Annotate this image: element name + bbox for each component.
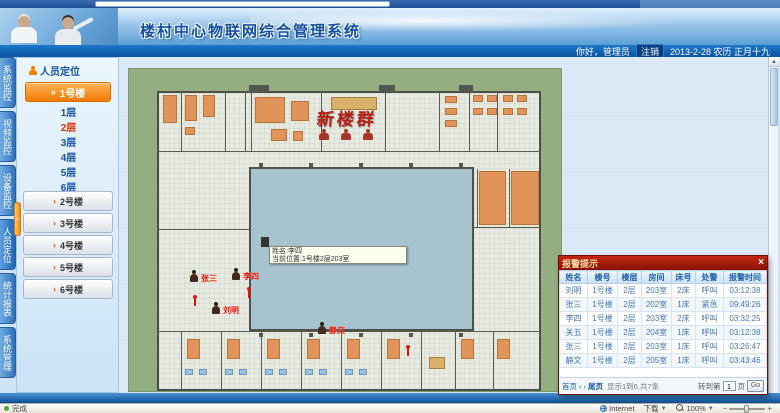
furniture-block [487, 95, 497, 102]
sofa-icon [363, 129, 373, 141]
welcome-text: 你好，管理员 [576, 45, 630, 58]
alarm-row[interactable]: 关五1号楼2层204室1床呼叫03:12:38 [560, 326, 767, 340]
magnifier-icon [676, 404, 685, 413]
col-bed: 床号 [672, 271, 696, 284]
furniture-block [307, 339, 320, 359]
panel-collapse-handle[interactable]: ‹ [14, 202, 21, 236]
wall-line [221, 331, 222, 391]
wall-line [439, 91, 440, 151]
furniture-block [487, 108, 497, 115]
furniture-block [347, 339, 360, 359]
furniture-block [511, 171, 539, 225]
person-figure-icon[interactable] [246, 287, 252, 299]
furniture-block [459, 333, 463, 337]
furniture-block [185, 95, 197, 121]
floor-item-1[interactable]: 1层 [17, 104, 120, 119]
furniture-block [203, 95, 215, 117]
tab-video-monitor[interactable]: 视频监控 [0, 111, 16, 162]
panel-title: 人员定位 [29, 63, 80, 78]
person-marker-label: 刘明 [223, 306, 239, 315]
pagination-info: 显示1到6,共7条 [607, 381, 659, 392]
person-marker-label: 静文 [329, 326, 345, 335]
person-marker[interactable]: 李四 [231, 267, 291, 281]
furniture-block [291, 101, 309, 121]
alarm-table-header: 姓名 楼号 楼层 房间 床号 处警 报警时间 [560, 271, 767, 284]
wall-line [421, 331, 422, 391]
download-indicator[interactable]: 下载 ▼ [644, 403, 667, 413]
furniture-block [517, 95, 527, 102]
alarm-popup: 报警提示 × 姓名 楼号 楼层 房间 床号 处警 报警时间 刘明1号楼2层203… [558, 255, 768, 395]
person-bust-icon [317, 322, 327, 335]
status-dot-icon [4, 406, 9, 411]
person-marker-label: 张三 [201, 274, 217, 283]
person-tooltip: 姓名:李四 当前位置:1号楼2层203室 [269, 246, 407, 264]
furniture-block [185, 369, 193, 375]
chevron-down-icon: ▼ [708, 406, 714, 412]
floor-list: 1层 2层 3层 4层 5层 6层 [17, 104, 120, 194]
download-label: 下载 [644, 403, 659, 413]
wall-line [477, 169, 478, 227]
person-bust-icon [231, 268, 241, 281]
floor-item-3[interactable]: 3层 [17, 134, 120, 149]
person-bust-icon [211, 302, 221, 315]
furniture-block [293, 131, 303, 141]
wall-line [157, 151, 541, 152]
building-button-label: 1号楼 [60, 85, 86, 100]
page-last-button[interactable]: 尾页 [588, 381, 603, 392]
furniture-block [259, 333, 263, 337]
close-icon[interactable]: × [758, 258, 764, 268]
status-right: Internet 下载 ▼ 100% ▼ − + [600, 403, 780, 413]
col-room: 房间 [642, 271, 672, 284]
sofa-icon [341, 129, 351, 141]
alarm-row[interactable]: 静文1号楼2层205室1床呼叫03:43:46 [560, 354, 767, 368]
chevron-right-icon: › [53, 240, 56, 250]
zoom-out-icon[interactable]: − [723, 404, 728, 413]
furniture-block [255, 97, 285, 123]
furniture-block [473, 95, 483, 102]
wall-line [301, 331, 302, 391]
chevron-right-icon: › [53, 218, 56, 228]
furniture-block [279, 369, 287, 375]
zoom-slider[interactable]: − + [723, 404, 772, 413]
tooltip-location: 当前位置:1号楼2层203室 [272, 256, 404, 264]
building-button-6[interactable]: › 6号楼 [23, 279, 113, 299]
alarm-table: 姓名 楼号 楼层 房间 床号 处警 报警时间 刘明1号楼2层203室2床呼叫03… [559, 270, 767, 368]
furniture-block [305, 369, 313, 375]
chevron-down-icon: ▼ [661, 406, 667, 412]
zoom-slider-track[interactable] [729, 408, 765, 410]
furniture-block [163, 95, 177, 123]
page-title: 楼村中心物联网综合管理系统 [140, 20, 361, 41]
floor-item-5[interactable]: 5层 [17, 164, 120, 179]
goto-label: 转到第 [698, 381, 721, 392]
internet-zone-indicator[interactable]: Internet [600, 404, 634, 413]
zoom-level-label: 100% [687, 404, 706, 413]
person-icon [29, 66, 37, 75]
alarm-row[interactable]: 张三1号楼2层202室1床紧急09:49:26 [560, 298, 767, 312]
wall-line [245, 91, 246, 151]
scrollbar-thumb[interactable] [770, 68, 778, 126]
building-button-4[interactable]: › 4号楼 [23, 235, 113, 255]
furniture-block [445, 120, 457, 127]
zoom-level-button[interactable]: 100% ▼ [676, 404, 714, 413]
wall-line [493, 331, 494, 391]
furniture-block [345, 369, 353, 375]
furniture-block [267, 339, 280, 359]
page-next-button[interactable]: › [584, 382, 587, 391]
page-number-input[interactable] [723, 381, 736, 391]
wall-line [509, 169, 510, 227]
furniture-block [445, 96, 457, 103]
furniture-block [445, 108, 457, 115]
furniture-block [309, 333, 313, 337]
tooltip-anchor [261, 237, 269, 247]
vertical-scrollbar[interactable]: ▲ [768, 57, 778, 393]
wall-line [251, 91, 252, 151]
panel-title-label: 人员定位 [40, 63, 80, 78]
status-text: 完成 [12, 403, 27, 413]
chevron-right-icon: » [51, 87, 56, 97]
browser-status-bar: 完成 Internet 下载 ▼ 100% ▼ − + [0, 403, 780, 413]
alarm-popup-title: 报警提示 [562, 257, 598, 270]
wall-line [181, 91, 182, 151]
building-button-3[interactable]: › 3号楼 [23, 213, 113, 233]
furniture-block [239, 369, 247, 375]
tab-statistics-report[interactable]: 统计报表 [0, 273, 16, 324]
furniture-block [227, 339, 240, 359]
furniture-block [503, 95, 513, 102]
furniture-block [503, 108, 513, 115]
globe-icon [600, 405, 607, 412]
furniture-block [199, 369, 207, 375]
subheader-bar: 你好，管理员 注销 2013-2-28 农历 正月十九 [0, 45, 780, 57]
app-window: 楼村中心物联网综合管理系统 你好，管理员 注销 2013-2-28 农历 正月十… [0, 0, 780, 413]
building-button-1[interactable]: » 1号楼 [25, 82, 111, 102]
furniture-block [187, 339, 200, 359]
alarm-pagination: 首页 ‹ › 尾页 显示1到6,共7条 转到第 页 Go [559, 377, 767, 394]
person-marker[interactable]: 静文 [317, 321, 377, 335]
internet-label: Internet [609, 404, 634, 413]
date-text: 2013-2-28 农历 正月十九 [670, 45, 770, 58]
wall-line [159, 229, 249, 230]
furniture-block [249, 85, 269, 92]
person-marker[interactable]: 刘明 [211, 301, 271, 315]
chevron-right-icon: › [53, 196, 56, 206]
wall-line [381, 331, 382, 391]
building-button-label: 3号楼 [60, 217, 83, 230]
page-suffix-label: 页 [738, 381, 746, 392]
alarm-row[interactable]: 李四1号楼2层203室2床呼叫03:32:25 [560, 312, 767, 326]
header-banner: 楼村中心物联网综合管理系统 [0, 8, 780, 45]
furniture-block [225, 369, 233, 375]
building-button-label: 5号楼 [60, 261, 83, 274]
wall-line [474, 227, 541, 228]
chevron-right-icon: › [53, 284, 56, 294]
col-handle: 处警 [696, 271, 724, 284]
furniture-block [459, 85, 473, 92]
building-button-label: 6号楼 [60, 283, 83, 296]
furniture-block [359, 369, 367, 375]
person-bust-icon [189, 270, 199, 283]
furniture-block [473, 108, 483, 115]
chevron-right-icon: › [53, 262, 56, 272]
tooltip-name: 姓名:李四 [272, 248, 404, 256]
photo-person-body [11, 27, 37, 43]
building-panel: 人员定位 » 1号楼 1层 2层 3层 4层 5层 6层 › 2号楼 › 3号楼… [16, 57, 119, 393]
scroll-up-arrow-icon[interactable]: ▲ [769, 57, 779, 67]
header-photo [0, 8, 118, 45]
wall-line [469, 91, 470, 151]
tab-system-manage[interactable]: 系统管理 [0, 327, 16, 378]
furniture-block [387, 339, 400, 359]
browser-top-strip [0, 0, 780, 8]
furniture-block [429, 357, 445, 369]
furniture-block [271, 129, 287, 141]
building-button-5[interactable]: › 5号楼 [23, 257, 113, 277]
furniture-block [409, 333, 413, 337]
furniture-block [319, 369, 327, 375]
furniture-block [479, 171, 506, 225]
address-bar[interactable] [95, 1, 390, 7]
wall-line [385, 91, 386, 151]
alarm-popup-titlebar: 报警提示 × [559, 256, 767, 270]
wall-line [341, 331, 342, 391]
furniture-block [185, 127, 195, 135]
zoom-in-icon[interactable]: + [767, 404, 772, 413]
browser-tab-area [640, 0, 780, 8]
building-button-label: 2号楼 [60, 195, 83, 208]
furniture-block [461, 339, 474, 359]
status-left: 完成 [0, 403, 27, 413]
col-time: 报警时间 [724, 271, 767, 284]
alarm-row[interactable]: 刘明1号楼2层203室2床呼叫03:12:38 [560, 284, 767, 298]
col-building: 楼号 [588, 271, 618, 284]
photo-person2-body [55, 29, 81, 45]
furniture-block [265, 369, 273, 375]
wall-line [497, 91, 498, 151]
tab-system-monitor[interactable]: 系统监控 [0, 57, 16, 108]
person-marker-label: 李四 [243, 272, 259, 281]
furniture-block [379, 85, 395, 92]
building-button-2[interactable]: › 2号楼 [23, 191, 113, 211]
wall-line [261, 331, 262, 391]
col-floor: 楼层 [618, 271, 642, 284]
person-figure-icon[interactable] [405, 345, 411, 357]
floor-plan[interactable]: 新楼群 姓名:李四 当前位置:1号楼2层203室 张三 李四 刘明 [128, 68, 562, 392]
furniture-block [517, 108, 527, 115]
floor-item-4[interactable]: 4层 [17, 149, 120, 164]
wall-line [455, 331, 456, 391]
col-name: 姓名 [560, 271, 588, 284]
floor-item-2-active[interactable]: 2层 [17, 119, 120, 134]
plan-calligraphy-label: 新楼群 [316, 105, 379, 130]
sofa-icon [319, 129, 329, 141]
person-figure-icon[interactable] [192, 295, 198, 307]
furniture-block [497, 339, 510, 359]
photo-person2-arm [72, 17, 93, 31]
wall-line [225, 91, 226, 151]
wall-line [181, 331, 182, 391]
building-button-label: 4号楼 [60, 239, 83, 252]
zoom-slider-knob[interactable] [744, 405, 749, 413]
go-button[interactable]: Go [747, 380, 764, 392]
alarm-row[interactable]: 张三1号楼2层203室1床呼叫03:26:47 [560, 340, 767, 354]
page-prev-button[interactable]: ‹ [579, 382, 582, 391]
page-first-button[interactable]: 首页 [562, 381, 577, 392]
